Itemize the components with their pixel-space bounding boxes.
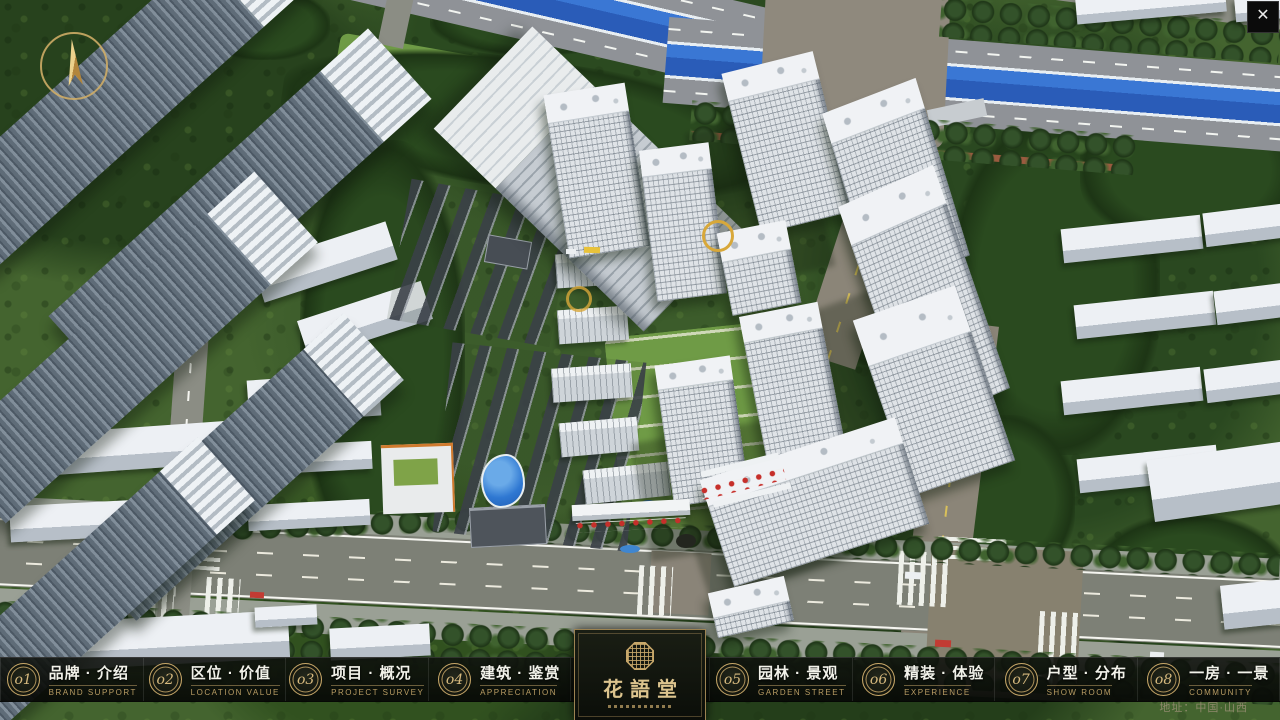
nav-item-location[interactable]: o2 区位 · 价值LOCATION VALUE [144, 658, 287, 701]
chinese-hall [469, 504, 547, 548]
nav-item-brand[interactable]: o1 品牌 · 介绍BRAND SUPPORT [0, 658, 144, 701]
lowrise-block [559, 417, 640, 458]
nav-label-zh: 精装 · 体验 [904, 662, 984, 683]
nav-label-zh: 项目 · 概况 [331, 662, 411, 683]
car [566, 249, 576, 254]
logo-subtext-decoration [608, 705, 672, 708]
close-icon: ✕ [1256, 7, 1269, 24]
nav-label-zh: 品牌 · 介绍 [49, 662, 129, 683]
nav-number-badge: o2 [149, 663, 182, 696]
nav-item-project[interactable]: o3 项目 · 概况PROJECT SURVEY [286, 658, 429, 701]
residential-slab [255, 604, 318, 627]
nav-item-floorplans[interactable]: o7 户型 · 分布SHOW ROOM [995, 658, 1138, 701]
nav-group-right: o5 园林 · 景观GARDEN STREET o6 精装 · 体验EXPERI… [709, 658, 1280, 701]
nav-number-badge: o3 [289, 663, 322, 696]
nav-label-en: PROJECT SURVEY [331, 685, 424, 697]
clubhouse-green-roof [393, 458, 438, 486]
compass-north-indicator [40, 32, 108, 100]
nav-label-en: LOCATION VALUE [191, 685, 280, 697]
clubhouse [381, 443, 455, 514]
car [905, 572, 921, 580]
compass-needle-icon [57, 37, 92, 93]
nav-group-left: o1 品牌 · 介绍BRAND SUPPORT o2 区位 · 价值LOCATI… [0, 658, 571, 701]
shuttle-bus [584, 247, 600, 254]
logo-frame: 花語堂 [578, 633, 702, 717]
nav-label-zh: 户型 · 分布 [1047, 662, 1127, 683]
nav-label-zh: 建筑 · 鉴赏 [480, 662, 560, 683]
nav-label-en: SHOW ROOM [1047, 685, 1113, 697]
nav-item-architecture[interactable]: o4 建筑 · 鉴赏APPRECIATION [429, 658, 572, 701]
nav-number-badge: o6 [862, 663, 895, 696]
nav-label-zh: 一房 · 一景 [1189, 662, 1269, 683]
nav-item-views[interactable]: o8 一房 · 一景COMMUNITY [1138, 658, 1280, 701]
nav-item-landscape[interactable]: o5 园林 · 景观GARDEN STREET [709, 658, 853, 701]
nav-number-badge: o8 [1147, 663, 1180, 696]
nav-number-badge: o1 [7, 663, 40, 696]
seal-icon [626, 642, 654, 670]
project-name: 花語堂 [596, 673, 684, 702]
project-logo[interactable]: 花語堂 [574, 629, 706, 720]
nav-number-badge: o5 [716, 663, 749, 696]
car [250, 592, 264, 599]
lowrise-block [551, 363, 633, 402]
nav-label-zh: 园林 · 景观 [758, 662, 838, 683]
gold-ring-sculpture [566, 286, 592, 312]
swimming-pool [481, 454, 525, 508]
crosswalk [637, 565, 674, 617]
nav-number-badge: o7 [1005, 663, 1038, 696]
bottom-navigation-bar: o1 品牌 · 介绍BRAND SUPPORT o2 区位 · 价值LOCATI… [0, 657, 1280, 702]
nav-label-zh: 区位 · 价值 [191, 662, 271, 683]
nav-label-en: COMMUNITY [1189, 685, 1252, 697]
nav-number-badge: o4 [438, 663, 471, 696]
car [935, 640, 951, 648]
gold-ring-sculpture [702, 220, 734, 252]
residential-slab [329, 623, 431, 660]
presentation-screen: ✕ o1 品牌 · 介绍BRAND SUPPORT o2 区位 · 价值LOCA… [0, 0, 1280, 720]
water-feature [620, 545, 640, 553]
nav-item-interior[interactable]: o6 精装 · 体验EXPERIENCE [853, 658, 996, 701]
nav-label-en: EXPERIENCE [904, 685, 971, 697]
project-address: 地址：中国·山西 [1159, 699, 1248, 715]
nav-label-en: GARDEN STREET [758, 685, 846, 697]
logo-slot: 花語堂 [571, 658, 709, 701]
close-button[interactable]: ✕ [1247, 1, 1279, 33]
nav-label-en: APPRECIATION [480, 685, 557, 697]
lowrise-block [557, 306, 629, 345]
nav-label-en: BRAND SUPPORT [49, 685, 137, 697]
map-viewport[interactable] [0, 0, 1280, 720]
